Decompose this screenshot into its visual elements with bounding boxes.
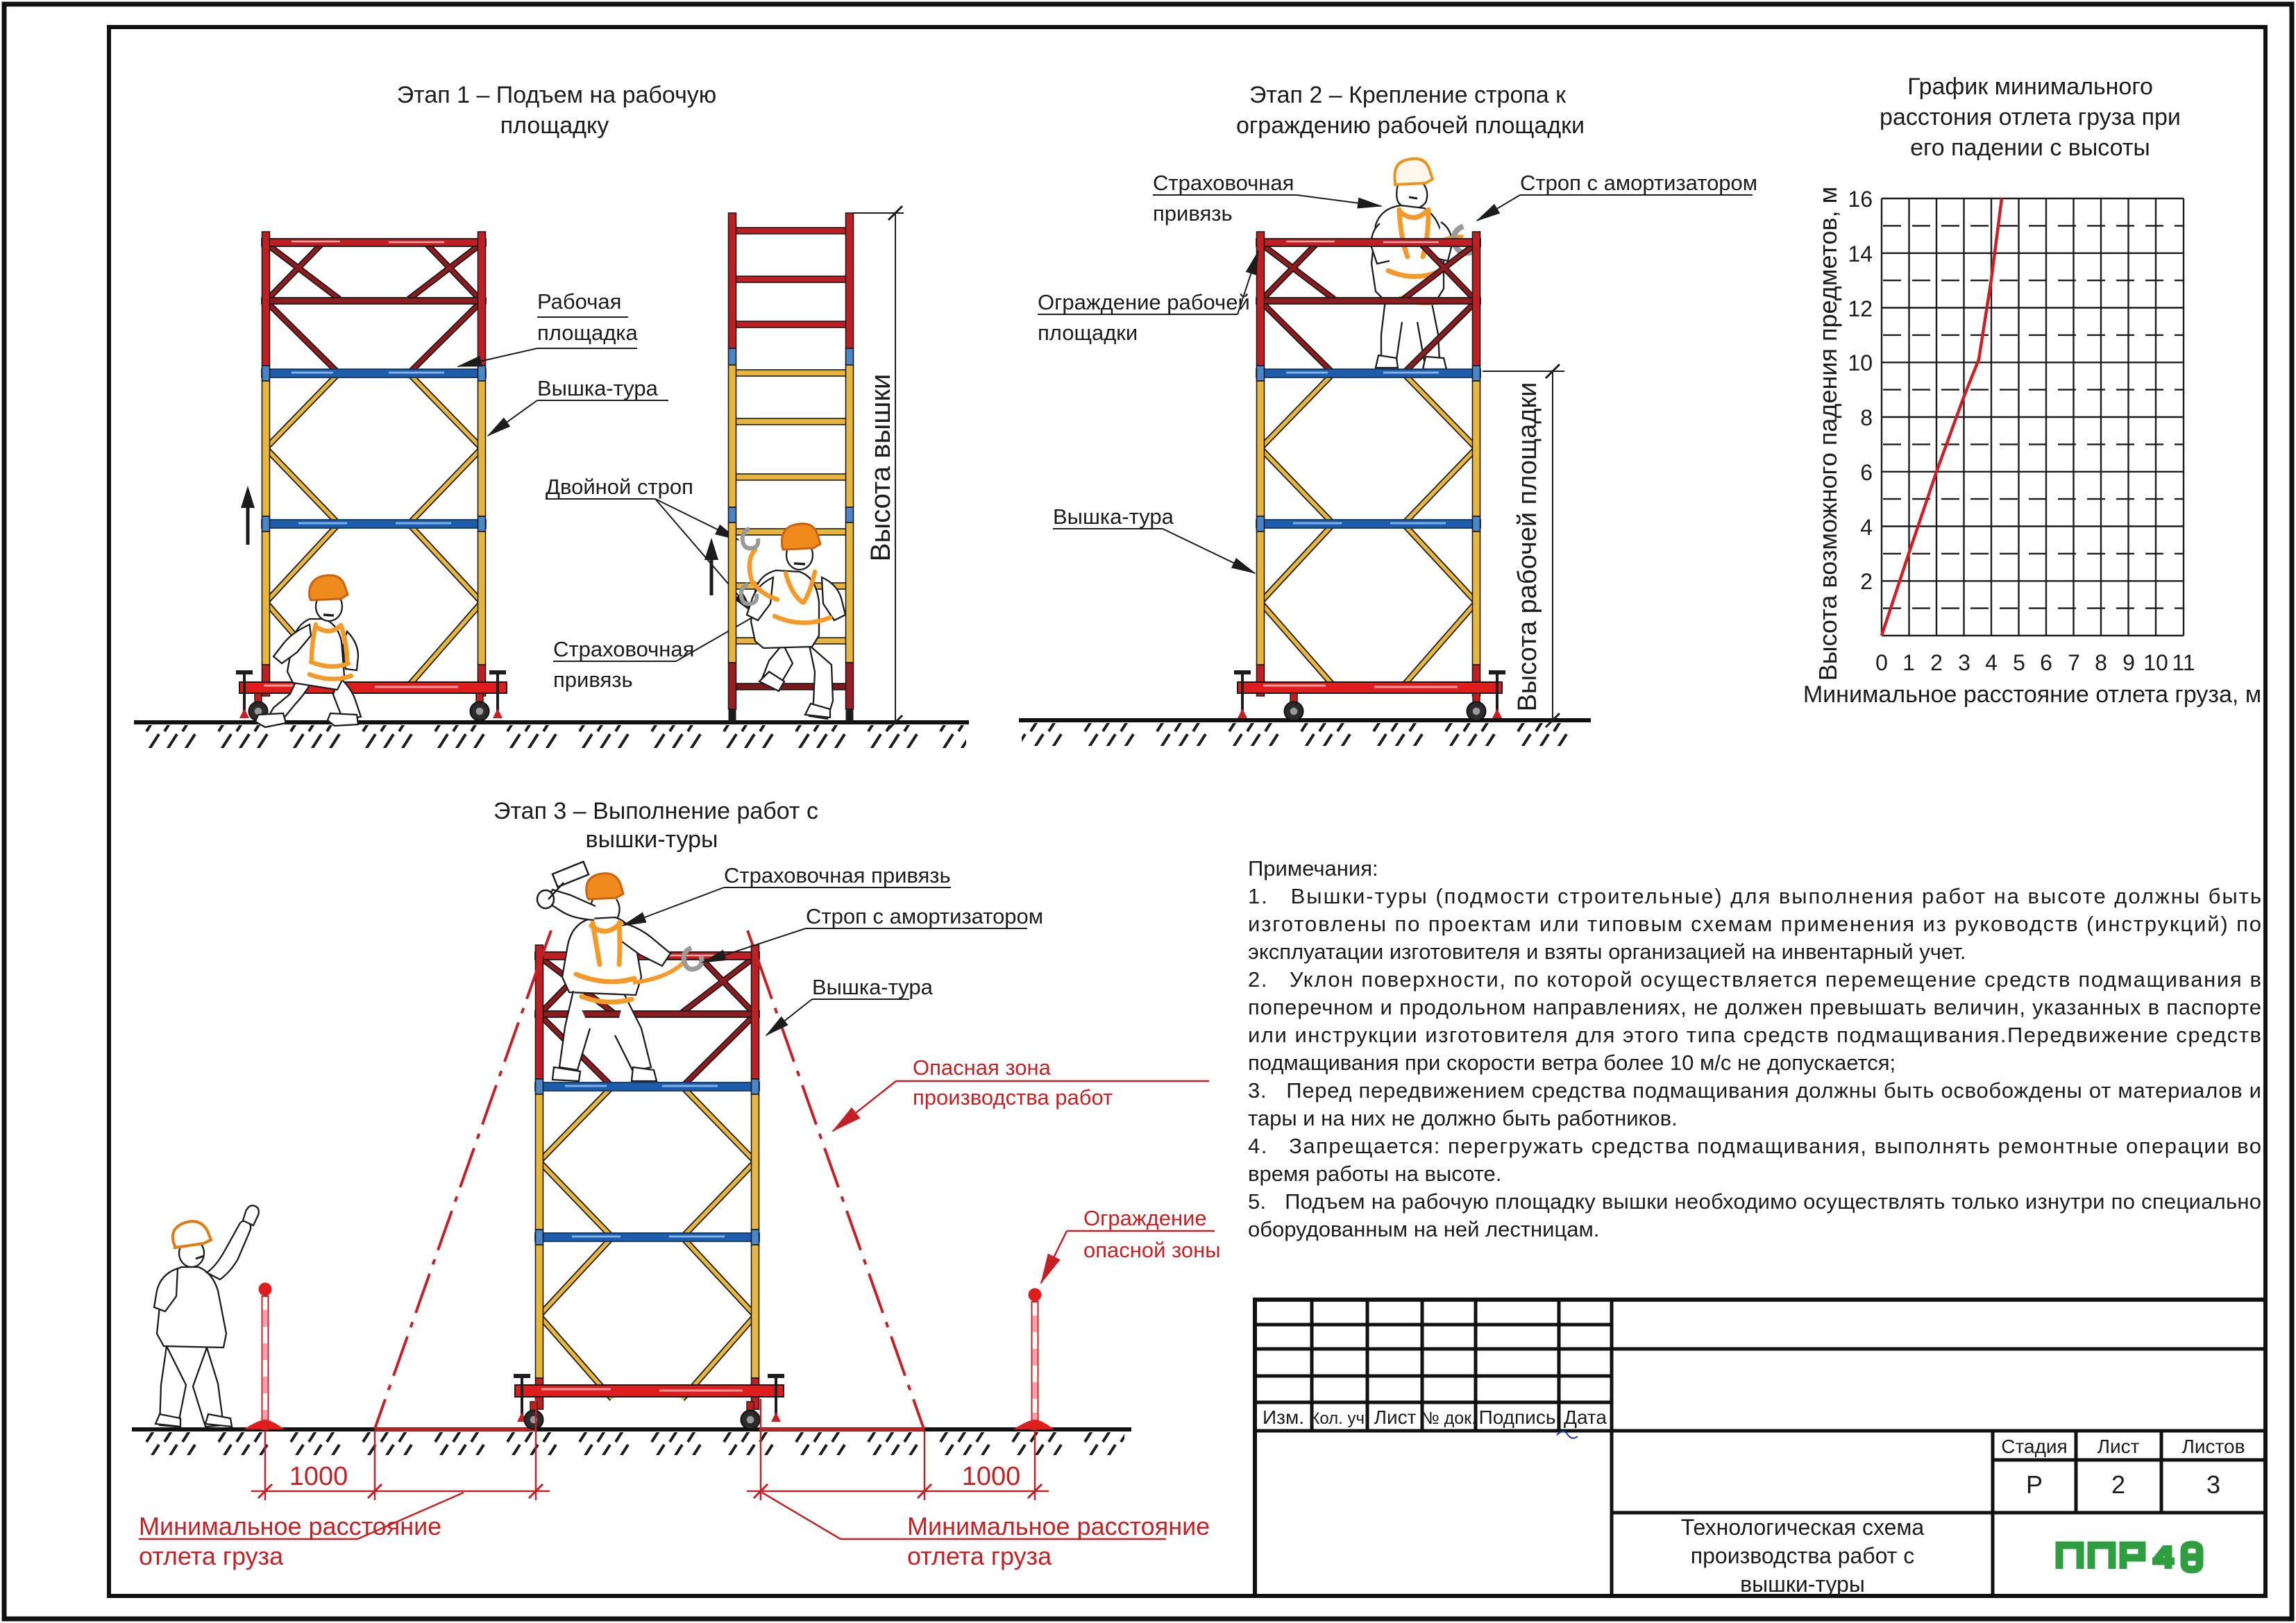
svg-text:Примечания:: Примечания: <box>1248 856 1378 881</box>
svg-text:3. Перед передвижением средс: 3. Перед передвижением средства подмащив… <box>1248 1078 2261 1103</box>
svg-text:Высота возможного падения пред: Высота возможного падения предметов, м <box>1814 187 1842 681</box>
svg-text:Этап 1 – Подъем на рабочую: Этап 1 – Подъем на рабочую <box>397 82 717 108</box>
svg-text:поперечном и продольном направ: поперечном и продольном направлениях, не… <box>1248 995 2261 1019</box>
svg-text:привязь: привязь <box>1153 201 1233 226</box>
svg-text:6: 6 <box>1860 460 1873 485</box>
svg-text:№ док.: № док. <box>1421 1409 1476 1428</box>
svg-text:10: 10 <box>1848 350 1873 375</box>
svg-text:Ограждение: Ограждение <box>1083 1206 1207 1230</box>
svg-text:1000: 1000 <box>289 1462 348 1491</box>
svg-text:7: 7 <box>2068 650 2080 675</box>
svg-text:Изм.: Изм. <box>1263 1407 1304 1428</box>
svg-text:3: 3 <box>2206 1470 2220 1499</box>
svg-text:Вышка-тура: Вышка-тура <box>537 376 659 400</box>
svg-text:или инструкции изготовителя дл: или инструкции изготовителя для этого ти… <box>1248 1023 2261 1047</box>
svg-text:Этап 3 – Выполнение работ с: Этап 3 – Выполнение работ с <box>493 798 818 824</box>
svg-text:Р: Р <box>2026 1470 2043 1499</box>
svg-text:Лист: Лист <box>1374 1407 1417 1428</box>
svg-text:1000: 1000 <box>962 1462 1021 1491</box>
svg-text:Листов: Листов <box>2182 1436 2245 1457</box>
svg-text:вышки-туры: вышки-туры <box>1740 1572 1865 1597</box>
svg-text:0: 0 <box>1875 650 1888 675</box>
svg-text:производства работ: производства работ <box>913 1085 1113 1110</box>
svg-text:3: 3 <box>1958 650 1970 675</box>
svg-text:Высота рабочей площадки: Высота рабочей площадки <box>1513 382 1542 712</box>
svg-text:2. Уклон поверхности, по кот: 2. Уклон поверхности, по которой осущест… <box>1248 967 2261 992</box>
svg-text:12: 12 <box>1848 296 1873 321</box>
svg-text:5: 5 <box>2013 650 2025 675</box>
svg-text:График минимального: График минимального <box>1907 74 2153 100</box>
svg-text:оборудованным на ней лестницам: оборудованным на ней лестницам. <box>1248 1217 1599 1241</box>
svg-text:4: 4 <box>1860 515 1873 540</box>
svg-text:Вышка-тура: Вышка-тура <box>1053 504 1174 529</box>
svg-text:Минимальное расстояние: Минимальное расстояние <box>139 1512 441 1540</box>
svg-text:6: 6 <box>2040 650 2052 675</box>
svg-text:Страховочная: Страховочная <box>553 637 694 661</box>
svg-text:отлета груза: отлета груза <box>139 1542 284 1570</box>
svg-text:опасной зоны: опасной зоны <box>1083 1238 1221 1262</box>
svg-text:Строп с амортизатором: Строп с амортизатором <box>806 904 1043 928</box>
svg-text:Опасная зона: Опасная зона <box>913 1055 1052 1080</box>
svg-text:Кол. уч.: Кол. уч. <box>1310 1409 1369 1428</box>
svg-text:Технологическая схема: Технологическая схема <box>1681 1515 1925 1540</box>
svg-text:тары и на них не должно быть р: тары и на них не должно быть работников. <box>1248 1106 1678 1130</box>
svg-text:1. Вышки-туры (подмости стро: 1. Вышки-туры (подмости строительные) дл… <box>1248 884 2261 908</box>
svg-text:8: 8 <box>1860 405 1873 430</box>
svg-text:его падении с высоты: его падении с высоты <box>1910 135 2150 161</box>
svg-text:Строп с амортизатором: Строп с амортизатором <box>1520 171 1757 195</box>
svg-text:Двойной строп: Двойной строп <box>546 475 693 499</box>
svg-text:площадка: площадка <box>537 321 639 345</box>
svg-text:эксплуатации изготовителя и вз: эксплуатации изготовителя и взяты органи… <box>1248 940 1966 964</box>
svg-text:2: 2 <box>1930 650 1943 675</box>
svg-text:2: 2 <box>1860 569 1873 594</box>
svg-text:Минимальное расстояние: Минимальное расстояние <box>907 1512 1210 1540</box>
svg-text:8: 8 <box>2095 650 2107 675</box>
svg-text:4: 4 <box>1985 650 1998 675</box>
svg-text:11: 11 <box>2172 650 2195 675</box>
svg-text:1: 1 <box>1902 650 1915 675</box>
svg-text:Страховочная: Страховочная <box>1153 171 1294 195</box>
svg-text:16: 16 <box>1848 187 1873 212</box>
svg-text:изготовлены по проектам или ти: изготовлены по проектам или типовым схем… <box>1248 912 2261 936</box>
svg-text:14: 14 <box>1848 241 1873 266</box>
svg-text:отлета груза: отлета груза <box>907 1542 1052 1570</box>
svg-text:Рабочая: Рабочая <box>537 289 621 314</box>
svg-text:4. Запрещается: перегружать: 4. Запрещается: перегружать средства под… <box>1248 1134 2261 1158</box>
svg-text:ограждению рабочей площадки: ограждению рабочей площадки <box>1236 112 1585 139</box>
svg-text:Дата: Дата <box>1564 1407 1607 1428</box>
svg-text:10: 10 <box>2143 650 2168 675</box>
svg-text:Стадия: Стадия <box>2001 1436 2067 1457</box>
svg-text:время работы на высоте.: время работы на высоте. <box>1248 1162 1501 1186</box>
svg-text:производства работ с: производства работ с <box>1691 1543 1914 1568</box>
svg-text:площадку: площадку <box>500 112 609 139</box>
svg-text:Этап 2 – Крепление стропа к: Этап 2 – Крепление стропа к <box>1249 82 1567 108</box>
svg-text:Страховочная привязь: Страховочная привязь <box>724 863 951 887</box>
svg-text:расстония отлета груза при: расстония отлета груза при <box>1880 104 2181 130</box>
svg-text:Высота вышки: Высота вышки <box>866 374 896 561</box>
svg-text:Минимальное расстояние отлета: Минимальное расстояние отлета груза, м <box>1803 681 2261 708</box>
svg-text:привязь: привязь <box>553 668 633 692</box>
svg-text:9: 9 <box>2122 650 2135 675</box>
svg-text:Подпись: Подпись <box>1479 1407 1556 1428</box>
svg-text:Вышка-тура: Вышка-тура <box>812 975 934 999</box>
svg-text:площадки: площадки <box>1038 321 1138 345</box>
svg-text:подмащивания при скорости ветр: подмащивания при скорости ветра более 10… <box>1248 1051 1896 1075</box>
svg-text:2: 2 <box>2111 1470 2125 1499</box>
svg-text:вышки-туры: вышки-туры <box>586 826 718 853</box>
svg-text:Ограждение рабочей: Ограждение рабочей <box>1038 290 1250 314</box>
svg-text:5. Подъем на рабочую площадк: 5. Подъем на рабочую площадку вышки необ… <box>1248 1189 2261 1214</box>
svg-text:Лист: Лист <box>2097 1436 2140 1457</box>
